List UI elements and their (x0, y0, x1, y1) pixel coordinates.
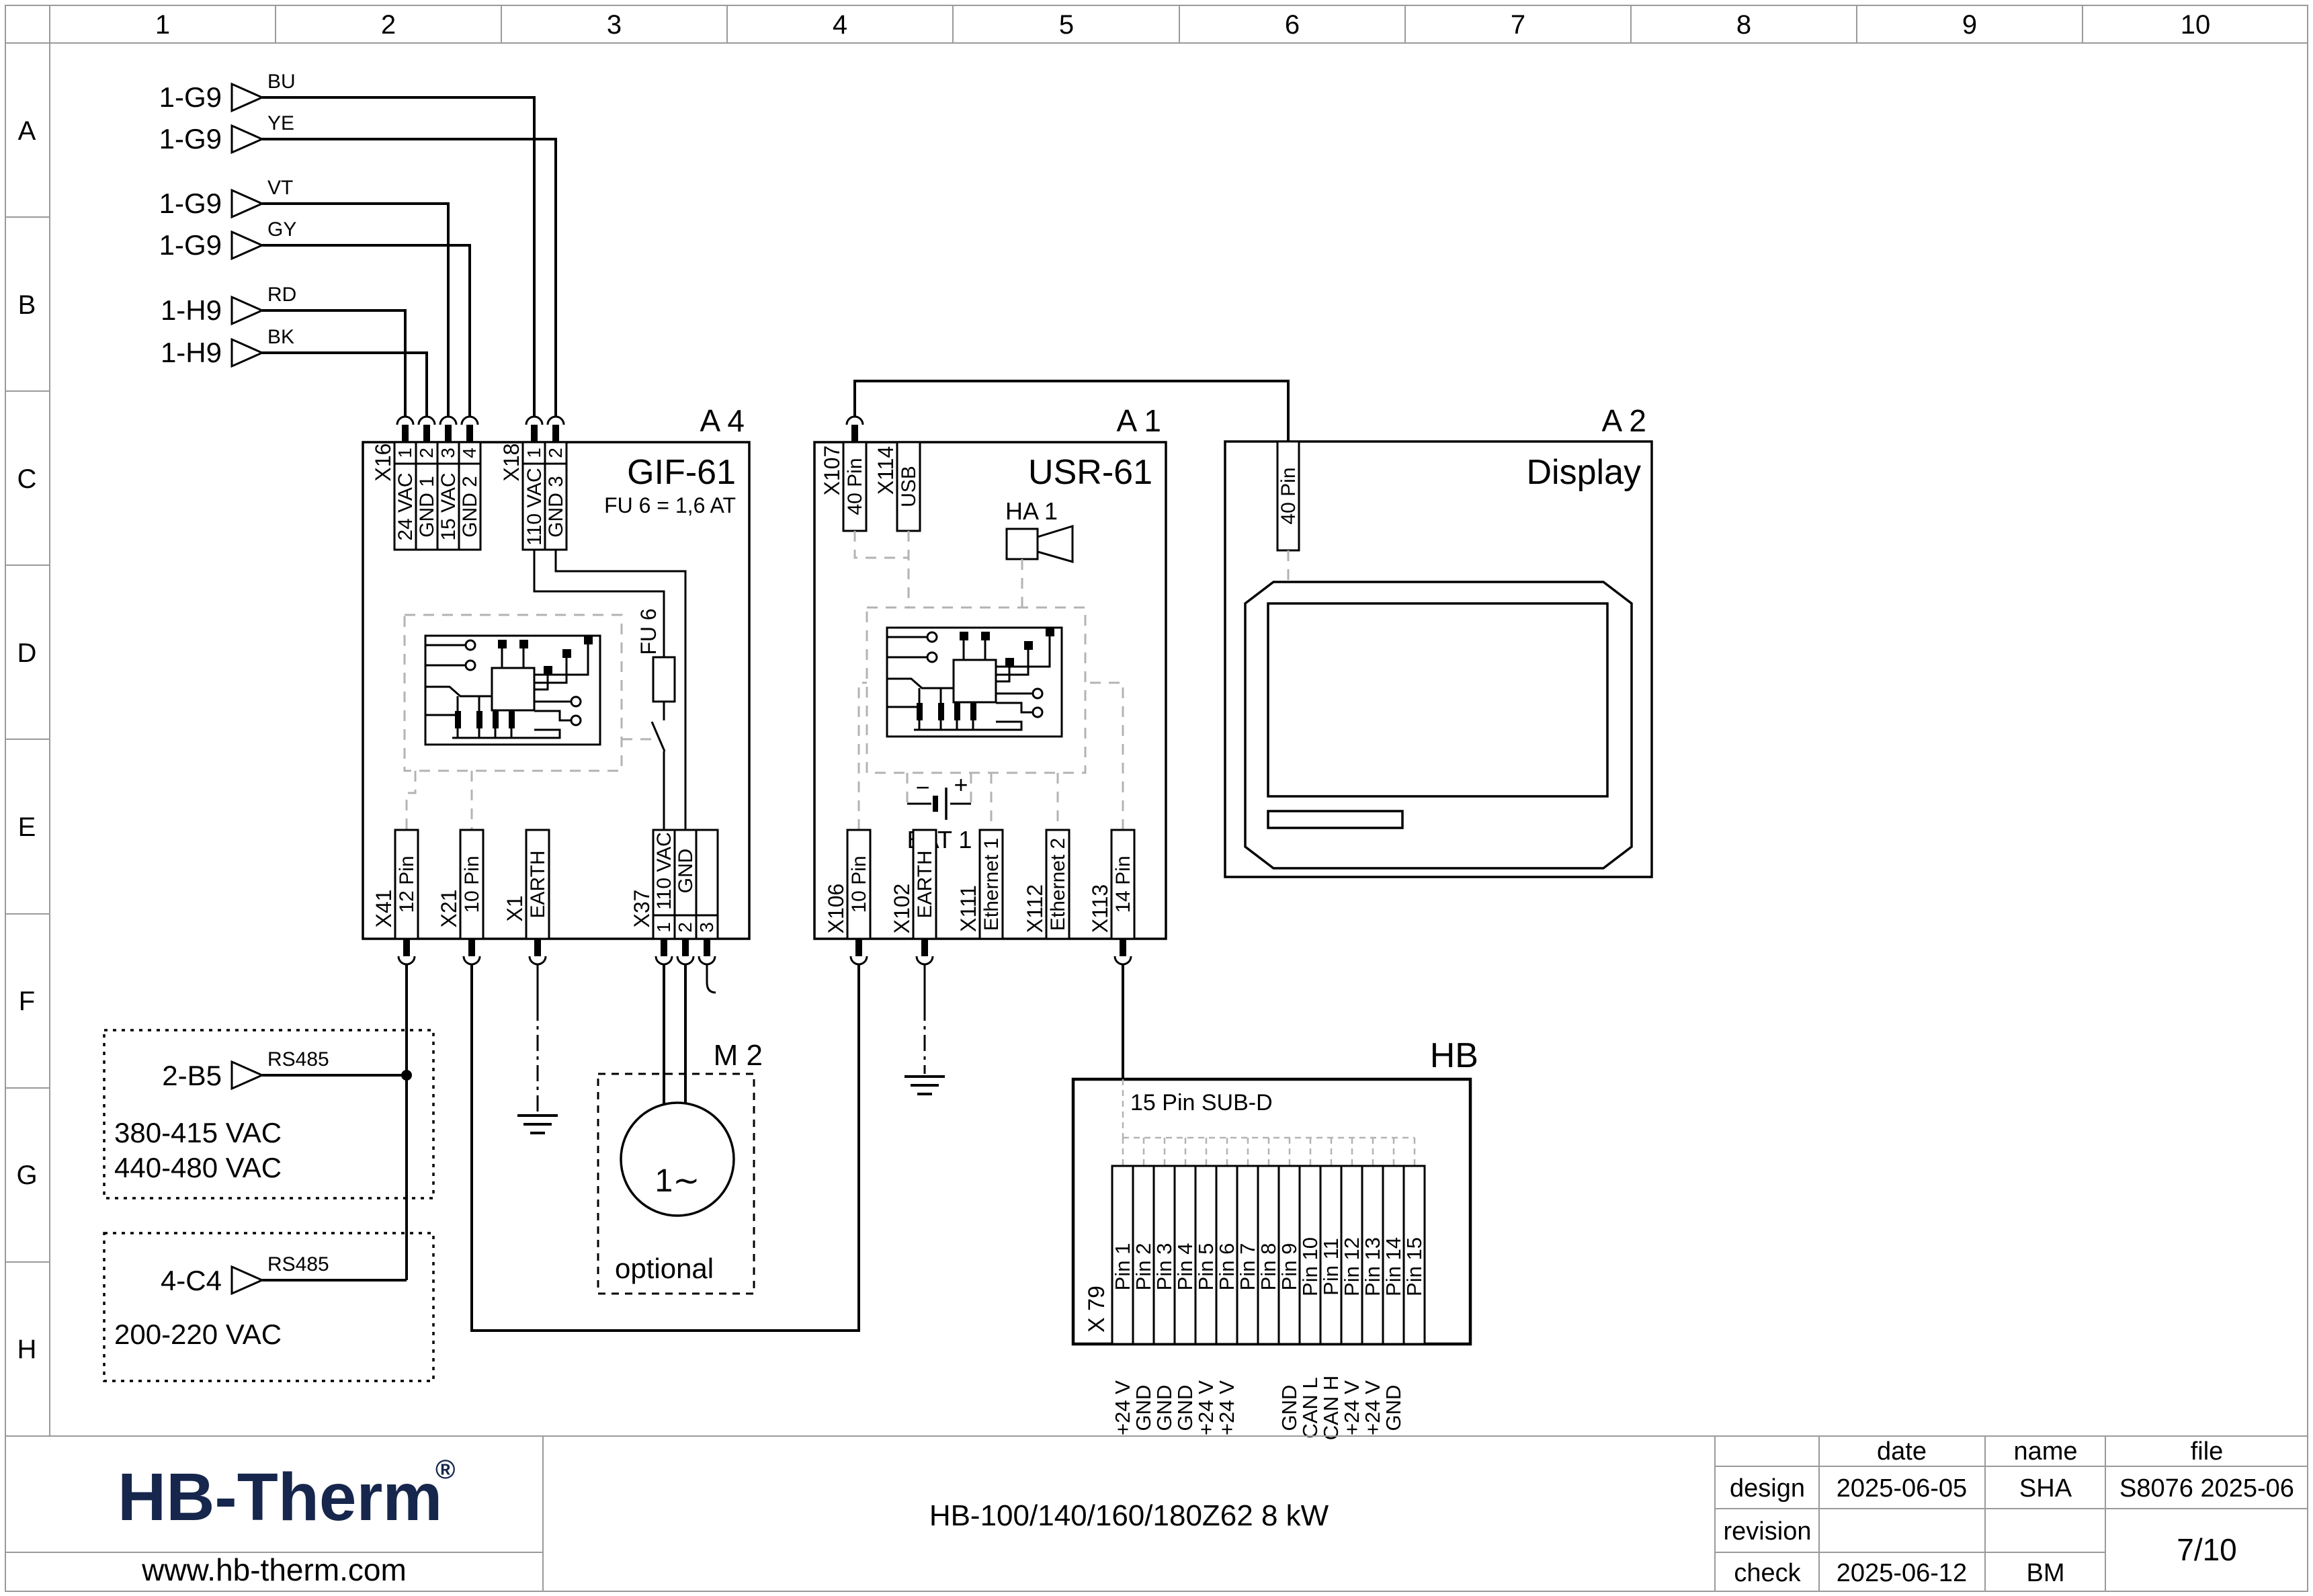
pin-label: 14 Pin (1112, 855, 1134, 913)
schematic-page: 1 2 3 4 5 6 7 8 9 10 A B C D E F G H 1-G… (0, 0, 2313, 1596)
row-label-design: design (1730, 1474, 1805, 1503)
connector-x18: X18 1 2 110 VAC GND 3 (499, 442, 567, 550)
connector-name: X41 (372, 890, 396, 928)
pin-label: 12 Pin (396, 855, 418, 913)
plug-connector-icons (851, 939, 1131, 964)
input-signals: 1-G9 BU 1-G9 YE 1-G9 VT 1-G9 GY 1-H9 RD … (159, 71, 556, 417)
pin-label: 40 Pin (1277, 467, 1300, 524)
usb-pcb-links (855, 531, 909, 607)
table-header-file: file (2191, 1437, 2224, 1466)
pin-label: 24 VAC (394, 472, 417, 540)
fuse-label: FU 6 (636, 608, 661, 655)
earth-ground-icon (517, 1116, 558, 1133)
block-hb: HB 15 Pin SUB-D X 79 Pin 1 Pin 2 Pin 3 P… (1073, 1036, 1478, 1440)
voltage-label: 380-415 VAC (114, 1117, 282, 1148)
earth-ground-x1 (517, 964, 558, 1133)
plug-connector-icon (847, 417, 863, 442)
drawing-grid-frame: 1 2 3 4 5 6 7 8 9 10 A B C D E F G H (5, 5, 2308, 1591)
pin-function-label: +24 V (1361, 1380, 1384, 1435)
wire-color-label: VT (267, 177, 293, 199)
horn-icon (1038, 526, 1073, 562)
pin-label: Ethernet 2 (1047, 838, 1069, 931)
earth-ground-icon (905, 1077, 945, 1094)
block-tag: A 4 (700, 403, 745, 438)
file-number: S8076 2025-06 (2119, 1474, 2294, 1503)
connector-name: X 79 (1084, 1286, 1109, 1333)
grid-col-label: 9 (1962, 10, 1977, 40)
pin-label: Pin 1 (1111, 1243, 1134, 1291)
hb-pin-functions: +24 V GND GND GND +24 V +24 V GND CAN L … (1111, 1376, 1405, 1440)
pin-label: Ethernet 1 (980, 838, 1003, 931)
block-title: Display (1527, 453, 1642, 492)
connector-name: X113 (1088, 884, 1112, 933)
pin-label: GND 1 (416, 476, 438, 538)
optional-note: optional (615, 1253, 714, 1284)
connector-x107: X107 40 Pin (820, 442, 866, 531)
fuse-icon (653, 657, 675, 702)
input-signal: 1-G9 BU (159, 71, 296, 113)
connector-x21: X21 10 Pin (437, 830, 483, 939)
input-ref: 1-G9 (159, 81, 222, 113)
pin-number: 1 (523, 448, 544, 458)
pin-label: 40 Pin (844, 458, 866, 515)
pcb-circuit-icon (425, 636, 600, 745)
connector-name: X21 (437, 890, 461, 928)
voltage-label: 200-220 VAC (114, 1318, 282, 1350)
pin-label: Pin 5 (1194, 1243, 1218, 1291)
pin-label: 10 Pin (461, 855, 483, 913)
block-a1-usr61: A 1 USR-61 X107 40 Pin X114 USB HA 1 − +… (814, 403, 1166, 964)
plug-connector-icons (398, 939, 715, 964)
pin-function-label: CAN L (1298, 1377, 1322, 1438)
pin-number: 1 (394, 448, 415, 458)
connector-name: X1 (503, 895, 527, 921)
connector-arrow-icon (232, 232, 262, 259)
wire-x37-motor (664, 964, 685, 1104)
registered-mark: ® (435, 1455, 455, 1484)
connector-name: X102 (890, 884, 914, 934)
connector-x37: X37 110 VAC GND 1 2 3 (630, 830, 718, 939)
grid-row-label: B (18, 290, 36, 320)
website-link[interactable]: www.hb-therm.com (141, 1552, 407, 1587)
pin-function-label: +24 V (1194, 1380, 1218, 1435)
grid-col-label: 8 (1736, 10, 1751, 40)
pin-label: 10 Pin (848, 855, 870, 913)
input-signal: 1-G9 GY (159, 218, 297, 261)
connector-x1: X1 EARTH (503, 830, 549, 939)
block-a4-gif61: A 4 GIF-61 FU 6 = 1,6 AT X16 1 2 3 4 24 … (363, 403, 749, 964)
table-header-name: name (2013, 1437, 2077, 1466)
pin-label: Pin 13 (1361, 1237, 1384, 1296)
input-signal: 1-H9 RD (161, 284, 296, 326)
pin-number: 1 (653, 922, 674, 933)
grid-row-label: D (17, 638, 37, 668)
pin-function-label: +24 V (1111, 1380, 1134, 1435)
pin-label: Pin 15 (1402, 1237, 1426, 1296)
connector-a2-40pin: 40 Pin (1277, 442, 1300, 550)
pin-function-label: +24 V (1340, 1380, 1363, 1435)
grid-col-label: 1 (155, 10, 170, 40)
pin-label: GND 3 (545, 476, 567, 538)
connector-arrow-icon (232, 339, 262, 366)
input-wires (262, 97, 556, 417)
connector-arrow-icon (232, 84, 262, 111)
horn-ha1: HA 1 (1005, 497, 1073, 607)
title-block: HB-Therm ® www.hb-therm.com HB-100/140/1… (5, 1436, 2308, 1591)
wire-color-label: YE (267, 112, 294, 134)
pin-label: Pin 4 (1173, 1243, 1197, 1291)
block-tag: HB (1430, 1036, 1478, 1075)
pin-label: GND (675, 849, 697, 894)
connector-x41: X41 12 Pin (372, 830, 418, 939)
pin-number: 4 (459, 448, 480, 458)
grid-col-label: 5 (1059, 10, 1074, 40)
pin-label: Pin 11 (1319, 1238, 1343, 1296)
connector-name: X107 (820, 446, 844, 496)
battery-minus-sign: − (915, 773, 929, 801)
motor-m2: M 2 1∼ optional (598, 1039, 763, 1294)
grid-col-label: 7 (1511, 10, 1525, 40)
bus-label: RS485 (267, 1253, 329, 1275)
motor-phase-symbol: 1∼ (655, 1163, 700, 1199)
battery-plus-sign: + (954, 771, 968, 798)
block-a2-display: A 2 Display 40 Pin (1225, 403, 1652, 877)
pin-label: Pin 6 (1215, 1243, 1238, 1291)
grid-row-label: H (17, 1335, 37, 1364)
switch-blade-icon (652, 722, 665, 751)
logo-cell: HB-Therm ® www.hb-therm.com (118, 1455, 455, 1587)
wire-color-label: BU (267, 71, 296, 93)
wire-color-label: GY (267, 218, 296, 241)
wire-color-label: RD (267, 284, 296, 306)
pin-function-label: GND (1382, 1385, 1405, 1431)
wire-color-label: BK (267, 326, 294, 348)
connector-x79: X 79 Pin 1 Pin 2 Pin 3 Pin 4 Pin 5 Pin 6… (1084, 1166, 1426, 1344)
connector-arrow-icon (232, 126, 262, 153)
pin-label: Pin 10 (1298, 1237, 1322, 1296)
plug-connector-icons (397, 417, 564, 442)
pin-label: Pin 12 (1340, 1237, 1363, 1296)
input-ref: 1-G9 (159, 123, 222, 155)
pin-function-label: GND (1277, 1385, 1301, 1431)
horn-icon (1007, 529, 1038, 559)
pin-label: Pin 14 (1382, 1237, 1405, 1296)
grid-col-label: 3 (607, 10, 622, 40)
grid-col-label: 10 (2181, 10, 2211, 40)
connector-name: X111 (956, 885, 980, 932)
pin-number: 2 (416, 448, 437, 458)
check-name: BM (2027, 1559, 2065, 1587)
block-tag: A 1 (1116, 403, 1161, 438)
grid-col-label: 6 (1285, 10, 1300, 40)
subd-header: 15 Pin SUB-D (1130, 1090, 1273, 1116)
connector-x106: X106 10 Pin (824, 830, 870, 939)
fuse-rating-note: FU 6 = 1,6 AT (604, 493, 736, 517)
feed-box-4c4: 4-C4 RS485 200-220 VAC (104, 1233, 433, 1381)
connector-name: X18 (499, 444, 523, 482)
page-number: 7/10 (2177, 1532, 2237, 1567)
approval-table: date name file design 2025-06-05 SHA S80… (1724, 1437, 2294, 1587)
connector-x112: X112 Ethernet 2 (1023, 830, 1069, 939)
connector-x114: X114 USB (874, 442, 920, 531)
input-ref: 1-G9 (159, 229, 222, 261)
design-name: SHA (2019, 1474, 2072, 1503)
pin-label: Pin 2 (1132, 1243, 1155, 1291)
input-signal: 1-G9 YE (159, 112, 294, 155)
design-date: 2025-06-05 (1837, 1474, 1967, 1503)
connector-arrow-icon (232, 297, 262, 324)
connector-x102: X102 EARTH (890, 830, 936, 939)
feed-ref: 2-B5 (162, 1060, 222, 1091)
pin-function-label: GND (1132, 1385, 1155, 1431)
pin-number: 3 (696, 922, 717, 933)
wire-x107-to-display (855, 381, 1288, 442)
pin-label: 15 VAC (437, 472, 460, 540)
connector-arrow-icon (232, 1062, 262, 1089)
input-ref: 1-H9 (161, 294, 222, 326)
check-date: 2025-06-12 (1837, 1559, 1967, 1587)
block-tag: M 2 (714, 1039, 763, 1072)
voltage-label: 440-480 VAC (114, 1152, 282, 1183)
pin-label: GND 2 (459, 476, 481, 538)
grid-row-label: G (16, 1161, 37, 1190)
pin-function-label: CAN H (1319, 1376, 1343, 1440)
pin-label: Pin 9 (1277, 1243, 1301, 1291)
table-header-date: date (1877, 1437, 1927, 1466)
display-icon (1245, 582, 1632, 868)
feed-ref: 4-C4 (161, 1265, 222, 1296)
pin-function-label: GND (1152, 1385, 1176, 1431)
block-title: GIF-61 (627, 453, 736, 492)
grid-row-label: E (18, 812, 36, 842)
input-ref: 1-G9 (159, 187, 222, 219)
horn-label: HA 1 (1005, 497, 1058, 525)
input-ref: 1-H9 (161, 337, 222, 368)
block-tag: A 2 (1601, 403, 1646, 438)
connector-name: X106 (824, 884, 848, 934)
pcb-connector-links (407, 771, 472, 830)
pin-label: Pin 7 (1236, 1243, 1259, 1291)
pin-number: 3 (437, 448, 458, 458)
pin-function-label: +24 V (1215, 1380, 1238, 1435)
input-signal: 1-G9 VT (159, 177, 294, 219)
document-title: HB-100/140/160/180Z62 8 kW (929, 1499, 1329, 1532)
row-label-check: check (1734, 1559, 1801, 1587)
connector-arrow-icon (232, 190, 262, 217)
row-label-revision: revision (1724, 1517, 1812, 1546)
connector-arrow-icon (232, 1267, 262, 1294)
connector-x113: X113 14 Pin (1088, 830, 1134, 939)
grid-col-label: 4 (833, 10, 847, 40)
grid-row-label: A (18, 116, 36, 146)
connector-name: X112 (1023, 884, 1047, 933)
pin-number: 2 (545, 448, 566, 458)
pin-label: EARTH (914, 850, 936, 918)
pin-label: Pin 3 (1152, 1243, 1176, 1291)
company-logo: HB-Therm (118, 1460, 442, 1535)
pin-label: USB (898, 466, 920, 507)
pin-label: Pin 8 (1257, 1243, 1280, 1291)
bus-label: RS485 (267, 1048, 329, 1070)
grid-col-label: 2 (381, 10, 396, 40)
connector-name: X16 (371, 444, 395, 482)
grid-row-label: C (17, 464, 37, 494)
pin-number: 2 (675, 922, 696, 933)
pcb-circuit-icon (887, 628, 1062, 737)
pin-label: EARTH (527, 850, 549, 918)
grid-row-label: F (19, 986, 35, 1016)
wire-x37-pin3-stub (707, 964, 716, 993)
connector-x16: X16 1 2 3 4 24 VAC GND 1 15 VAC GND 2 (371, 442, 481, 550)
block-title: USR-61 (1028, 453, 1152, 492)
earth-ground-x102 (905, 964, 945, 1094)
pin-function-label: GND (1173, 1385, 1197, 1431)
connector-name: X114 (874, 446, 898, 495)
pin-label: 110 VAC (523, 468, 546, 546)
input-signal: 1-H9 BK (161, 326, 294, 368)
connector-name: X37 (630, 890, 654, 928)
pin-label: 110 VAC (653, 832, 675, 910)
feed-box-2b5: 2-B5 RS485 380-415 VAC 440-480 VAC (104, 1030, 433, 1198)
